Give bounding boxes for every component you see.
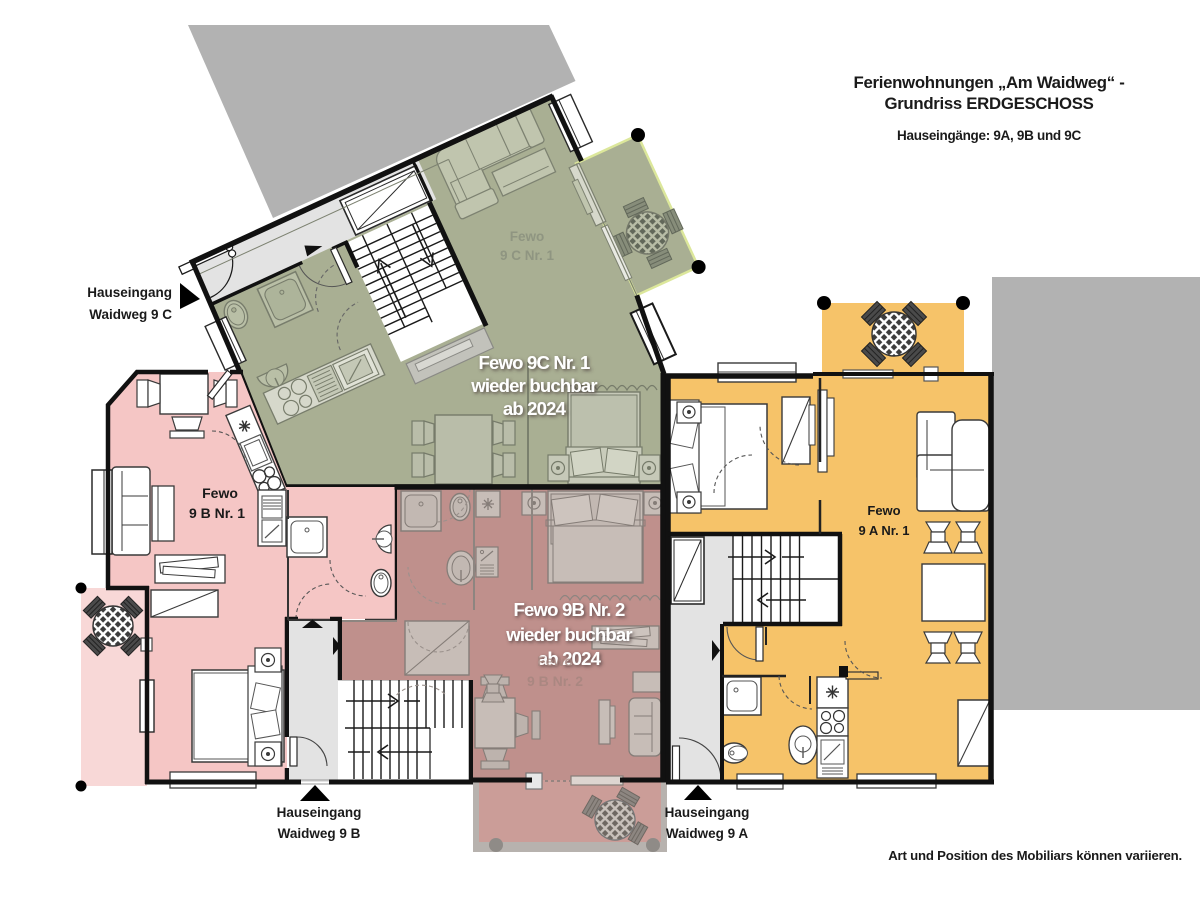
svg-text:9 A Nr. 1: 9 A Nr. 1 bbox=[858, 523, 909, 538]
svg-text:Ferienwohnungen „Am Waidweg“ -: Ferienwohnungen „Am Waidweg“ - bbox=[854, 73, 1125, 92]
svg-text:Grundriss ERDGESCHOSS: Grundriss ERDGESCHOSS bbox=[884, 94, 1093, 113]
svg-text:wieder buchbar: wieder buchbar bbox=[505, 624, 632, 645]
svg-text:Fewo: Fewo bbox=[867, 503, 900, 518]
svg-text:Art und Position des Mobiliars: Art und Position des Mobiliars können va… bbox=[888, 848, 1182, 863]
svg-text:Hauseingang: Hauseingang bbox=[665, 805, 750, 820]
svg-text:Waidweg 9 C: Waidweg 9 C bbox=[89, 307, 172, 322]
svg-text:Fewo: Fewo bbox=[537, 653, 573, 669]
svg-text:Fewo 9B Nr. 2: Fewo 9B Nr. 2 bbox=[514, 599, 625, 620]
svg-text:Hauseingang: Hauseingang bbox=[87, 285, 172, 300]
svg-text:Waidweg 9 B: Waidweg 9 B bbox=[278, 826, 361, 841]
svg-text:Waidweg 9 A: Waidweg 9 A bbox=[666, 826, 749, 841]
svg-text:Hauseingänge: 9A, 9B und 9C: Hauseingänge: 9A, 9B und 9C bbox=[897, 128, 1081, 143]
svg-text:wieder buchbar: wieder buchbar bbox=[470, 375, 597, 396]
svg-text:9 B Nr. 1: 9 B Nr. 1 bbox=[189, 505, 245, 521]
svg-text:9 B Nr. 2: 9 B Nr. 2 bbox=[527, 673, 583, 689]
svg-text:ab 2024: ab 2024 bbox=[503, 398, 567, 419]
svg-text:Hauseingang: Hauseingang bbox=[277, 805, 362, 820]
svg-text:Fewo: Fewo bbox=[510, 229, 545, 244]
svg-text:Fewo 9C Nr. 1: Fewo 9C Nr. 1 bbox=[479, 352, 590, 373]
svg-text:9 C Nr. 1: 9 C Nr. 1 bbox=[500, 248, 555, 263]
svg-text:Fewo: Fewo bbox=[202, 485, 238, 501]
